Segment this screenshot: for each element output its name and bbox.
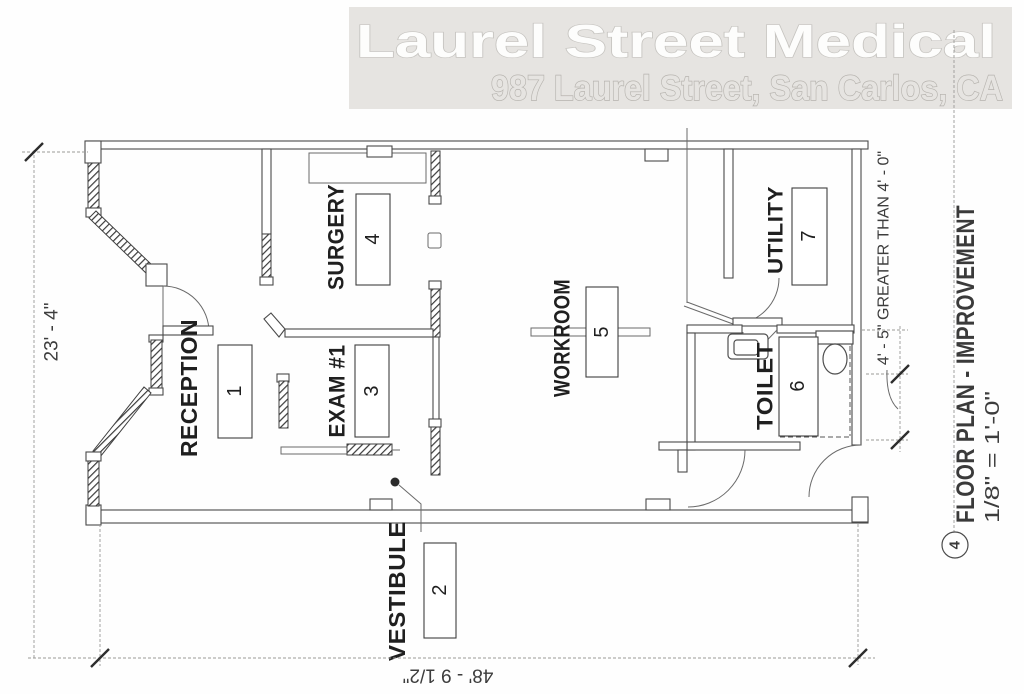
leader-dot xyxy=(391,478,400,487)
corridor-wall-thin xyxy=(433,337,439,425)
window-1 xyxy=(88,163,99,210)
toilet-tank xyxy=(816,331,853,344)
wall-end-cap xyxy=(429,281,441,289)
floor-plan-sheet: Laurel Street Medical 987 Laurel Street,… xyxy=(0,0,1024,694)
room-labels: RECEPTION 1 VESTIBULE 2 EXAM #1 3 SURGER… xyxy=(176,184,820,661)
dimension-leader-curve xyxy=(887,370,898,409)
jog-wall-line xyxy=(687,302,735,320)
utility-number: 7 xyxy=(798,230,820,241)
toilet-south-step-leg xyxy=(678,450,687,472)
right-dimension-text: 4' - 5" GREATER THAN 4' - 0" xyxy=(876,151,893,365)
toilet-north-wall-left xyxy=(687,325,742,333)
toilet-south-step xyxy=(659,442,687,450)
floor-plan-drawing: Laurel Street Medical 987 Laurel Street,… xyxy=(0,0,1024,694)
exam-counter-vertical xyxy=(279,381,288,428)
toilet-bowl xyxy=(823,344,847,374)
window-2 xyxy=(89,211,154,274)
top-wall-box xyxy=(645,149,668,161)
vestibule-label: VESTIBULE xyxy=(384,521,410,661)
detail-number: 4 xyxy=(947,540,964,549)
toilet-west-wall xyxy=(687,333,695,450)
drawing-title: FLOOR PLAN - IMPROVEMENT xyxy=(952,205,980,523)
toilet-south-wall xyxy=(687,442,800,450)
workroom-number: 5 xyxy=(591,326,613,337)
window-3 xyxy=(151,340,162,389)
surgery-label: SURGERY xyxy=(324,184,349,290)
surgery-exam-wall xyxy=(285,329,433,337)
window-4 xyxy=(93,387,151,457)
window-cap xyxy=(86,452,101,461)
jog-wall-line xyxy=(684,306,733,324)
rear-door-swing-arc xyxy=(809,445,861,497)
threshold-left xyxy=(370,499,392,510)
bottom-wall xyxy=(86,510,868,523)
workroom-label: WORKROOM xyxy=(550,279,575,397)
exam-counter-hatched xyxy=(347,444,392,455)
reception-label: RECEPTION xyxy=(176,319,202,457)
toilet-label: TOILET xyxy=(753,342,778,430)
wall-end-cap xyxy=(260,277,273,285)
header: Laurel Street Medical 987 Laurel Street,… xyxy=(349,7,1012,109)
toilet-number: 6 xyxy=(787,380,809,391)
reception-surgery-wall xyxy=(262,149,271,234)
bottom-dimension-text: 48' - 9 1/2" xyxy=(403,665,494,686)
wall-outlet-symbol xyxy=(428,233,441,248)
vestibule-number: 2 xyxy=(429,584,451,595)
utility-door-swing-arc xyxy=(733,278,779,324)
utility-label: UTILITY xyxy=(765,186,788,274)
reception-surgery-wall-hatched xyxy=(262,234,271,280)
threshold-right xyxy=(646,499,670,510)
right-wall xyxy=(852,149,861,445)
surgery-number: 4 xyxy=(362,233,384,244)
reception-number: 1 xyxy=(224,385,246,396)
exam-counter-horizontal xyxy=(281,447,347,454)
corridor-wall-segment xyxy=(431,151,440,202)
right-wall-corner-block xyxy=(852,497,868,522)
bottom-left-post xyxy=(86,505,101,525)
top-wall xyxy=(86,141,868,149)
left-dimension-text: 23' - 4" xyxy=(42,303,63,362)
drawing-title-block: 4 FLOOR PLAN - IMPROVEMENT 1/8" = 1'-0" xyxy=(942,30,1004,558)
page-title: Laurel Street Medical xyxy=(356,15,996,67)
exam1-number: 3 xyxy=(361,385,383,396)
wall-end-cap xyxy=(429,196,441,204)
wall-end-cap xyxy=(429,419,441,427)
window-cap xyxy=(149,388,163,395)
page-subtitle: 987 Laurel Street, San Carlos, CA xyxy=(491,69,1003,108)
surgery-counter-box xyxy=(367,146,392,157)
exam1-label: EXAM #1 xyxy=(325,345,350,438)
utility-west-wall xyxy=(724,149,733,278)
drawing-scale: 1/8" = 1'-0" xyxy=(982,391,1004,523)
corridor-door-swing-arc xyxy=(688,450,745,507)
door-jamb-flag xyxy=(264,313,285,337)
corridor-wall-segment xyxy=(431,425,440,475)
bay-corner-block xyxy=(146,264,167,286)
window-5 xyxy=(88,461,99,506)
room-number-boxes xyxy=(218,188,827,638)
